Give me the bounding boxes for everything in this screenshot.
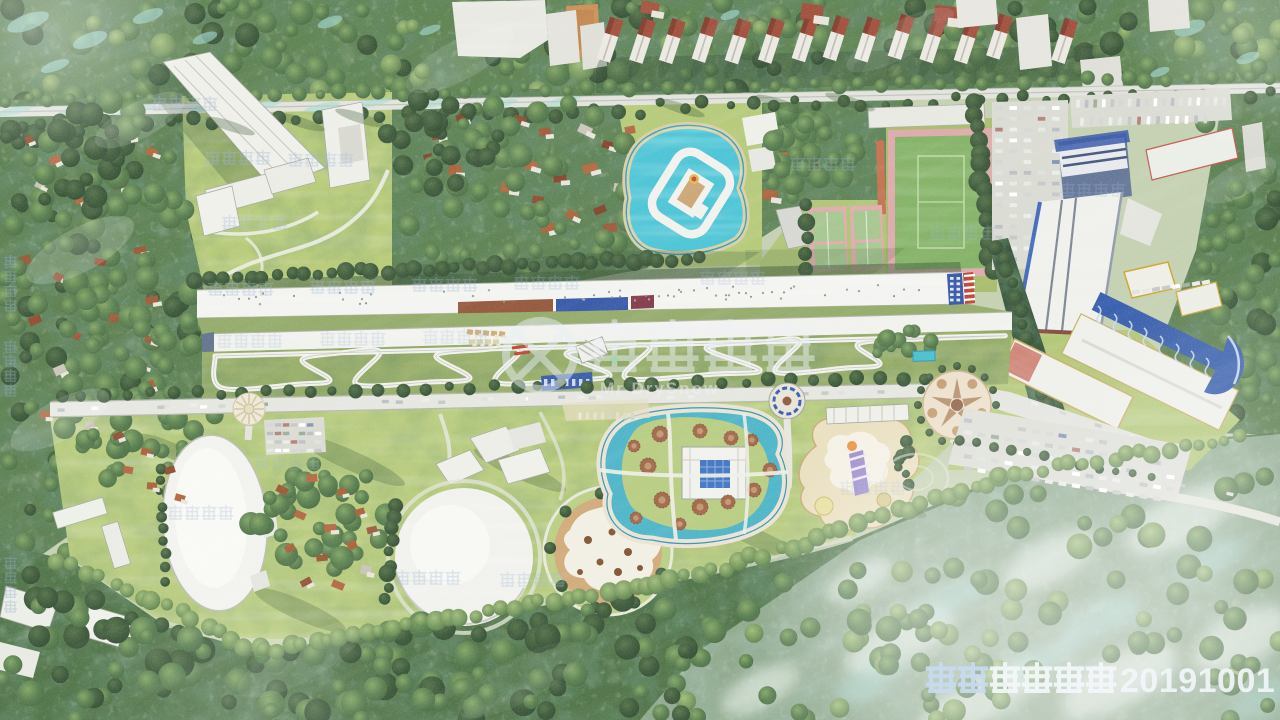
svg-text:20191001: 20191001 (1120, 662, 1275, 700)
